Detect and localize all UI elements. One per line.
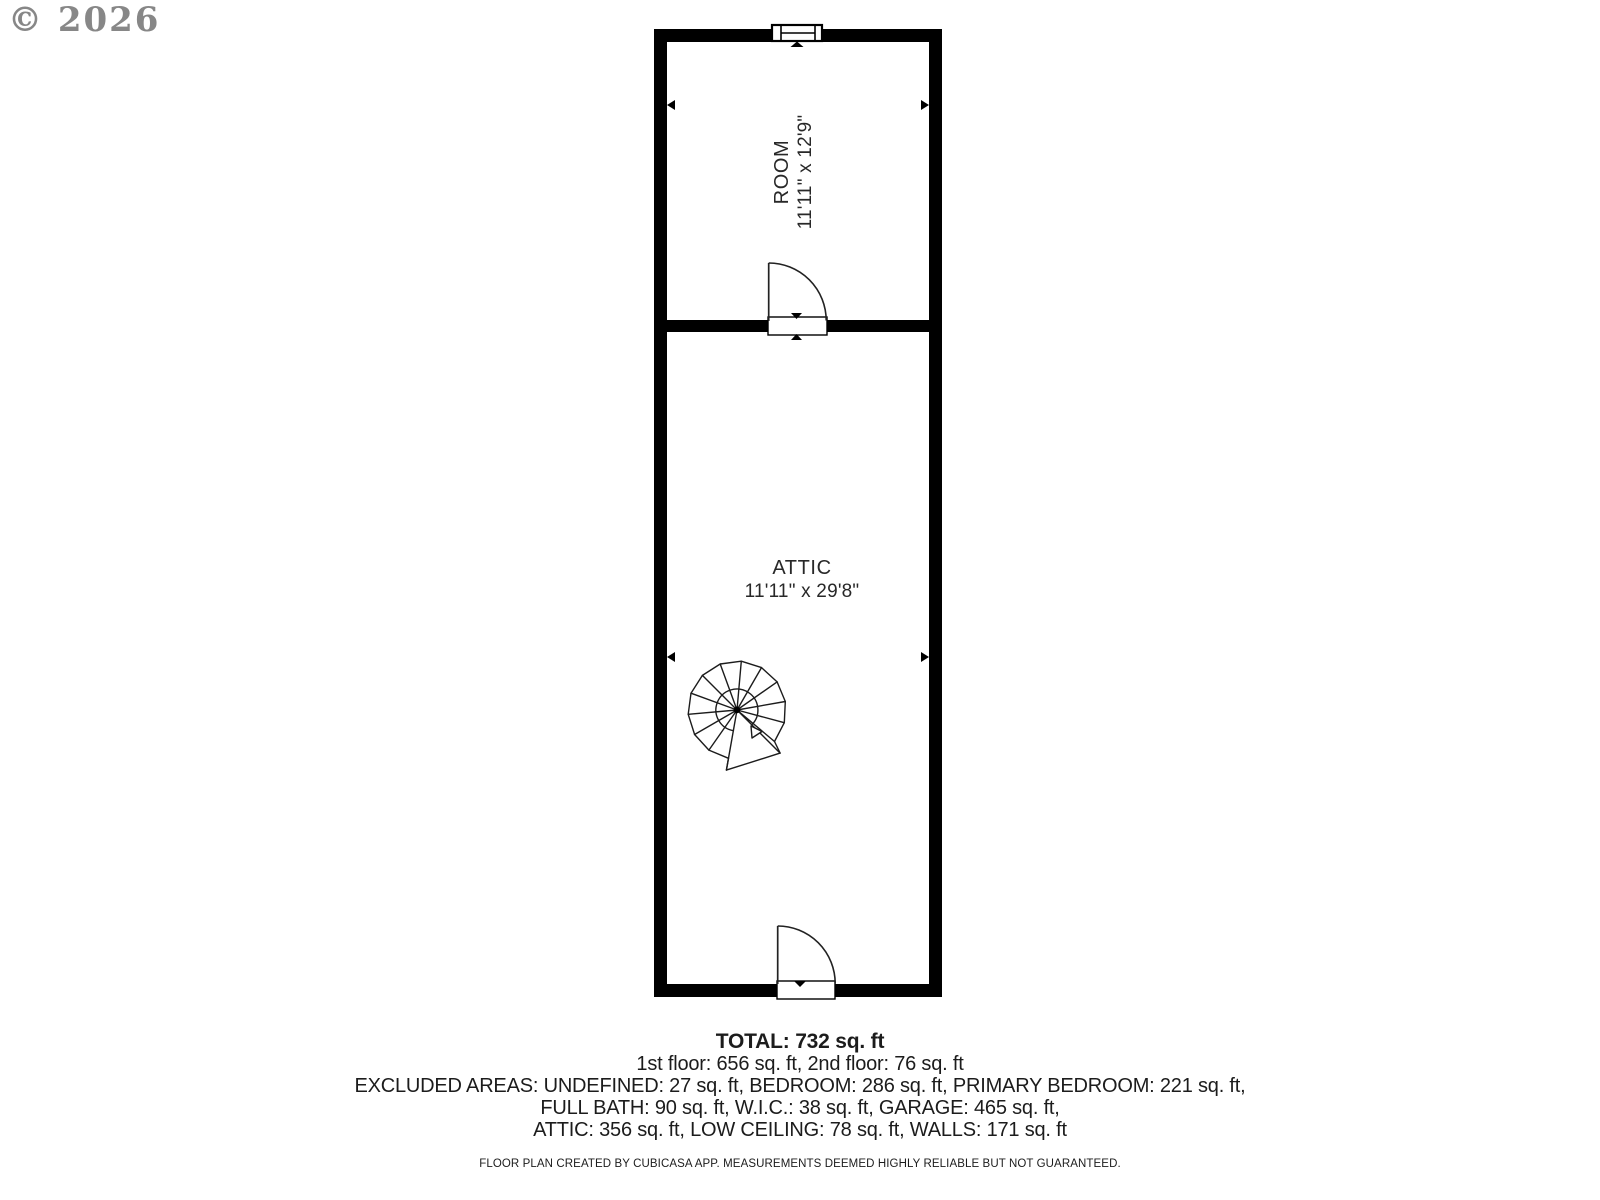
door-opening-middle: [768, 317, 827, 335]
area-summary: TOTAL: 732 sq. ft 1st floor: 656 sq. ft,…: [0, 1031, 1600, 1141]
door-opening-bottom: [777, 981, 835, 999]
room-dimensions: 11'11" x 12'9": [794, 115, 817, 230]
disclaimer: FLOOR PLAN CREATED BY CUBICASA APP. MEAS…: [0, 1158, 1600, 1170]
excluded-areas-line-2: FULL BATH: 90 sq. ft, W.I.C.: 38 sq. ft,…: [0, 1097, 1600, 1119]
excluded-areas-line-3: ATTIC: 356 sq. ft, LOW CEILING: 78 sq. f…: [0, 1119, 1600, 1141]
excluded-areas-line-1: EXCLUDED AREAS: UNDEFINED: 27 sq. ft, BE…: [0, 1075, 1600, 1097]
attic-name: ATTIC: [745, 556, 860, 580]
floor-areas: 1st floor: 656 sq. ft, 2nd floor: 76 sq.…: [0, 1053, 1600, 1075]
attic-dimensions: 11'11" x 29'8": [745, 580, 860, 604]
room-label: ROOM 11'11" x 12'9": [771, 115, 817, 230]
room-name: ROOM: [771, 115, 794, 230]
total-area: TOTAL: 732 sq. ft: [0, 1031, 1600, 1053]
window: [772, 25, 822, 41]
floor-plan-page: © 2026: [0, 0, 1600, 1200]
attic-label: ATTIC 11'11" x 29'8": [745, 556, 860, 604]
